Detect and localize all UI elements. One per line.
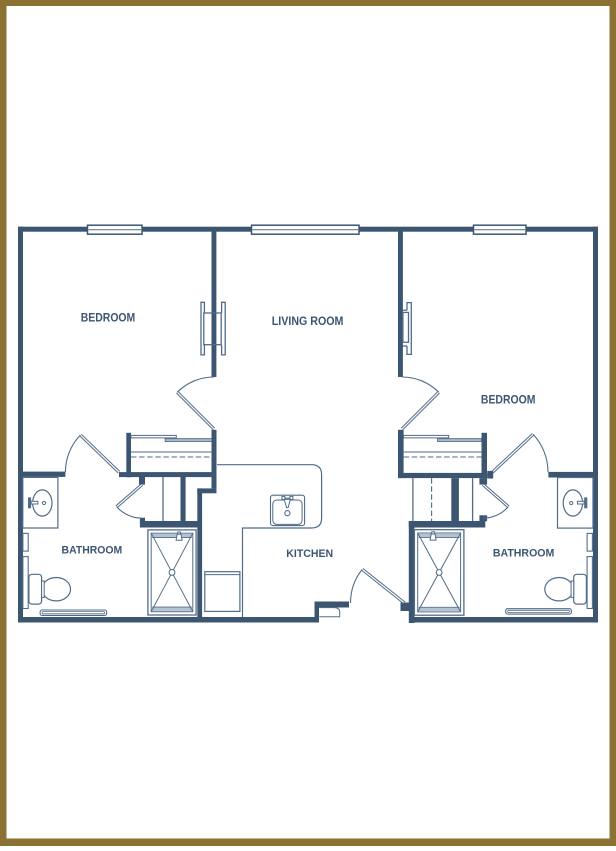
svg-text:BATHROOM: BATHROOM	[62, 544, 123, 556]
svg-text:LIVING ROOM: LIVING ROOM	[272, 314, 344, 328]
svg-text:BEDROOM: BEDROOM	[81, 310, 136, 324]
svg-text:BATHROOM: BATHROOM	[493, 547, 555, 559]
svg-text:BEDROOM: BEDROOM	[481, 392, 536, 406]
svg-text:KITCHEN: KITCHEN	[286, 548, 333, 560]
